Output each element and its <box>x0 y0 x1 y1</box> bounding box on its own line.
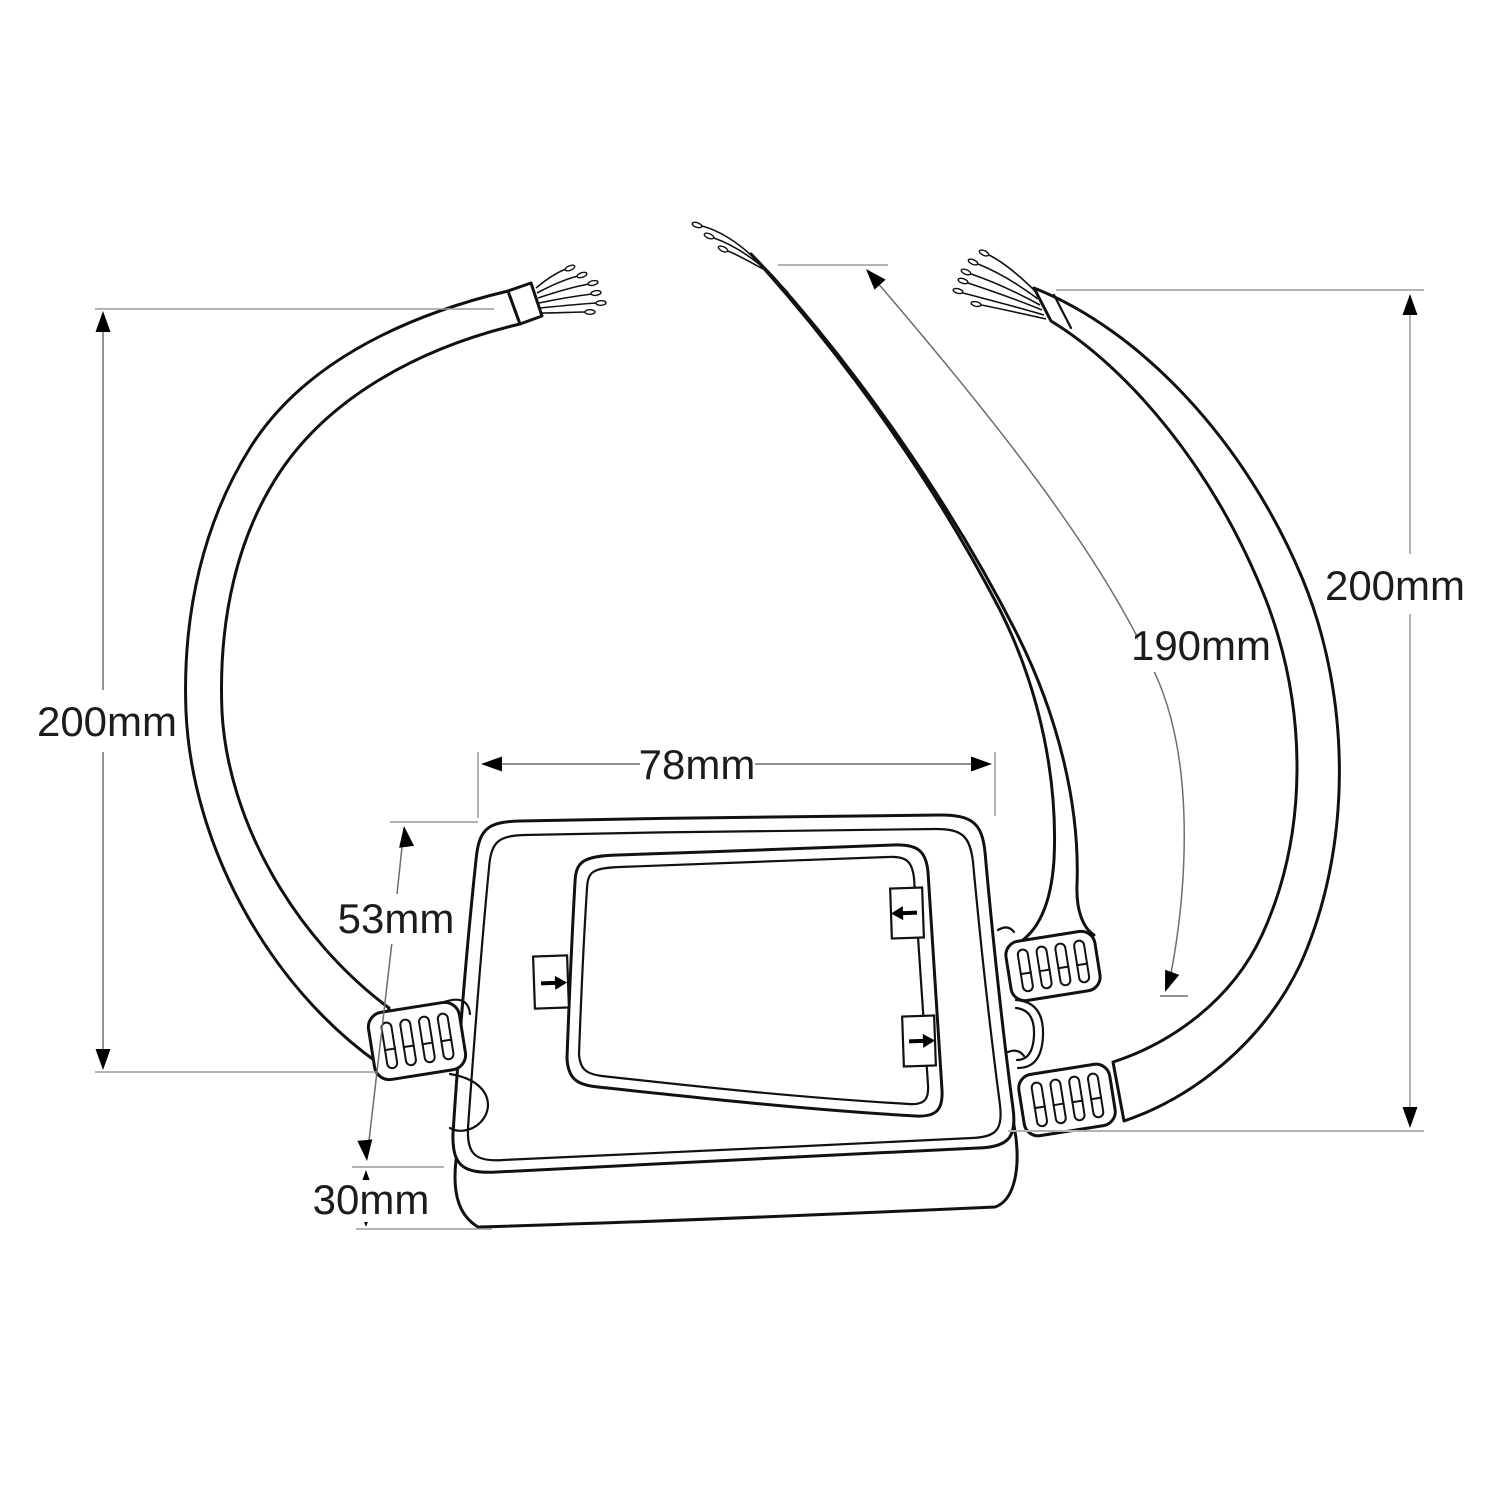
lid-tab-left <box>533 955 569 1008</box>
label-middle-cable-length: 190mm <box>1131 622 1271 669</box>
label-right-cable-length: 200mm <box>1325 562 1465 609</box>
cable-gland-bottom-right <box>1017 1062 1118 1138</box>
cable-gland-top-right <box>1004 929 1102 1002</box>
label-base-depth: 30mm <box>313 1176 430 1223</box>
junction-box <box>366 815 1117 1227</box>
lid-tab-top-right <box>890 887 924 938</box>
label-box-width: 78mm <box>639 741 756 788</box>
label-lid-height: 53mm <box>338 895 455 942</box>
cable-middle-sheath-cut <box>766 270 788 293</box>
cable-gland-left <box>366 1000 468 1082</box>
cable-middle-stripped-wires <box>692 221 763 269</box>
label-left-cable-length: 200mm <box>37 698 177 745</box>
lid-tab-bottom-right <box>902 1015 936 1066</box>
cable-right-stripped-wires <box>953 249 1046 319</box>
lid-recessed-panel <box>567 845 942 1116</box>
diagram-canvas: 200mm 78mm 53mm 30mm 190mm 200mm <box>0 0 1500 1500</box>
cable-left-stripped-wires <box>536 264 606 314</box>
junction-box-drawing: 200mm 78mm 53mm 30mm 190mm 200mm <box>0 0 1500 1500</box>
